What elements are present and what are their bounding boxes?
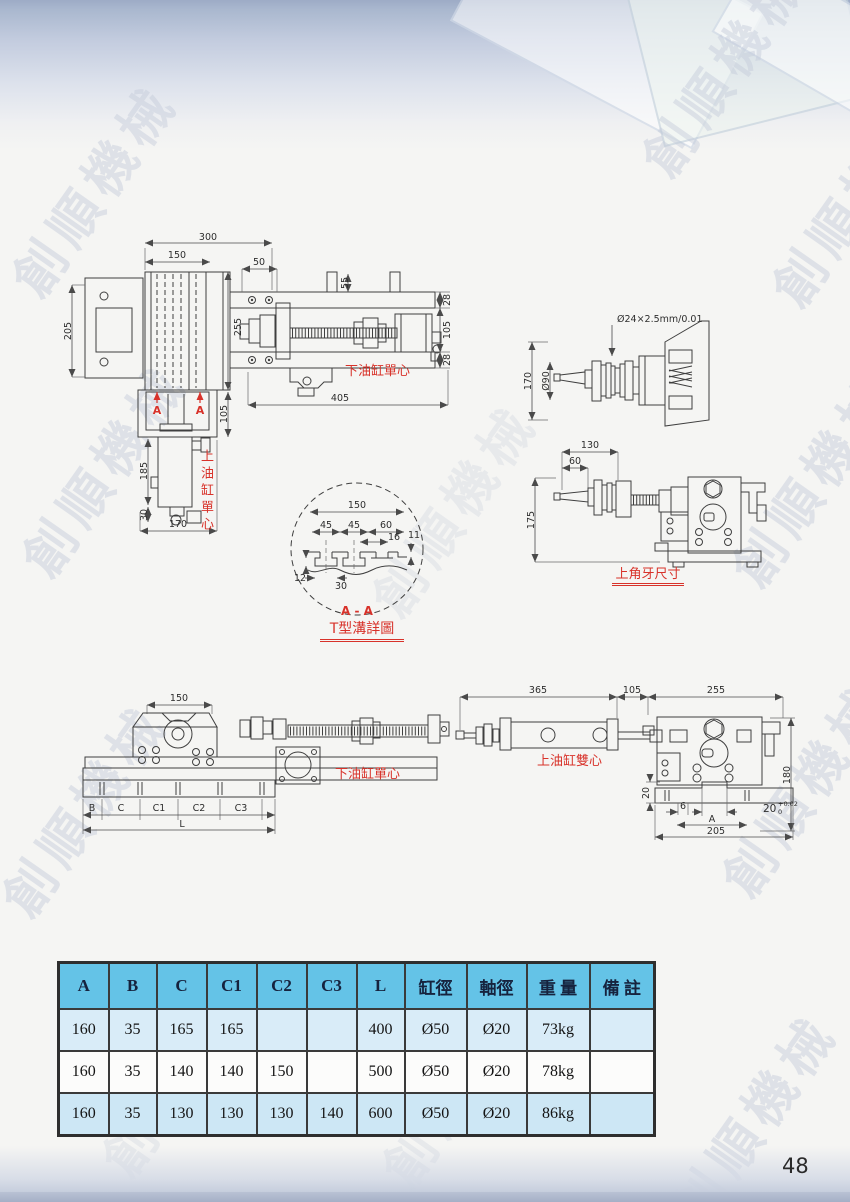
table-cell: 165: [207, 1009, 257, 1051]
table-cell: Ø50: [405, 1009, 467, 1051]
table-row: 160 35 140 140 150 500 Ø50 Ø20 78kg: [59, 1051, 655, 1093]
table-header-cell: 備 註: [590, 963, 655, 1010]
table-cell: Ø50: [405, 1051, 467, 1093]
table-cell: 160: [59, 1009, 109, 1051]
table-cell: 165: [157, 1009, 207, 1051]
dim-ls-C2: C2: [193, 803, 206, 814]
table-row: 160 35 165 165 400 Ø50 Ø20 73kg: [59, 1009, 655, 1051]
table-cell: 130: [207, 1093, 257, 1136]
dim-ut-6: 6: [680, 801, 686, 812]
catalog-page: 創順機械 創順機械 創順機械 創順機械 創順機械 創順機械 創順機械 創順機械 …: [0, 0, 850, 1202]
table-cell: [590, 1051, 655, 1093]
table-cell: [307, 1051, 357, 1093]
table-cell: [307, 1009, 357, 1051]
dim-front-50: 50: [253, 257, 265, 268]
table-header-cell: C2: [257, 963, 307, 1010]
table-cell: 160: [59, 1051, 109, 1093]
table-cell: 73kg: [527, 1009, 590, 1051]
table-cell: Ø20: [467, 1093, 527, 1136]
dim-slot-11: 11: [408, 530, 420, 541]
table-cell: 400: [357, 1009, 405, 1051]
dim-ls-150: 150: [170, 693, 188, 704]
dim-front-150: 150: [168, 250, 186, 261]
table-cell: [590, 1009, 655, 1051]
footer-gradient: [0, 1146, 850, 1192]
dim-front-185: 185: [139, 462, 150, 480]
spec-table-container: A B C C1 C2 C3 L 缸徑 軸徑 重 量 備 註 160 35 16…: [57, 961, 656, 1137]
dim-front-205: 205: [63, 322, 74, 340]
table-header-cell: A: [59, 963, 109, 1010]
dim-front-55: 55: [340, 277, 351, 289]
table-cell: 86kg: [527, 1093, 590, 1136]
table-header-cell: 軸徑: [467, 963, 527, 1010]
dim-front-105b: 105: [219, 405, 230, 423]
dim-hw-d90: Ø90: [541, 371, 552, 391]
table-header-row: A B C C1 C2 C3 L 缸徑 軸徑 重 量 備 註: [59, 963, 655, 1010]
table-cell: 140: [307, 1093, 357, 1136]
drawing-handwheel-view: Ø24×2.5mm/0.01 170 Ø90: [523, 314, 709, 426]
table-cell: 140: [207, 1051, 257, 1093]
dim-ut-tol-bottom: 0: [778, 808, 782, 816]
table-cell: Ø20: [467, 1051, 527, 1093]
dim-slot-150: 150: [348, 500, 366, 511]
table-cell: 500: [357, 1051, 405, 1093]
dim-front-28a: 28: [442, 294, 453, 306]
dim-ut-tol-top: +0.02: [778, 800, 798, 808]
technical-drawings: 300 150 50 55 205 255 28 105 28 405: [0, 0, 850, 950]
dim-ls-C: C: [118, 803, 125, 814]
label-upper-cylinder-double: 上油缸雙心: [537, 753, 602, 769]
dim-front-170: 170: [169, 519, 187, 530]
table-header-cell: 缸徑: [405, 963, 467, 1010]
table-cell: 600: [357, 1093, 405, 1136]
label-lower-cylinder: 下油缸單心: [345, 363, 410, 379]
section-marker-a: A: [196, 404, 205, 417]
dim-slot-45a: 45: [320, 520, 332, 531]
drawing-lower-unit-side: 150: [83, 693, 449, 834]
drawing-t-slot-detail: 150 45 45 60 16 11 12 30 A - A: [291, 483, 423, 618]
table-cell: 130: [157, 1093, 207, 1136]
table-row: 160 35 130 130 130 140 600 Ø50 Ø20 86kg: [59, 1093, 655, 1136]
table-cell: Ø50: [405, 1093, 467, 1136]
section-label-aa: A - A: [341, 604, 374, 618]
dim-ut-365: 365: [529, 685, 547, 696]
dim-ls-B: B: [89, 803, 96, 814]
dim-slot-60: 60: [380, 520, 392, 531]
table-header-cell: C: [157, 963, 207, 1010]
table-header-cell: B: [109, 963, 157, 1010]
dim-ls-C1: C1: [153, 803, 166, 814]
spec-table: A B C C1 C2 C3 L 缸徑 軸徑 重 量 備 註 160 35 16…: [57, 961, 656, 1137]
table-cell: 150: [257, 1051, 307, 1093]
dim-slot-30: 30: [335, 581, 347, 592]
callout-dial: Ø24×2.5mm/0.01: [617, 314, 703, 325]
dim-front-405: 405: [331, 393, 349, 404]
table-cell: 160: [59, 1093, 109, 1136]
dim-front-30: 30: [139, 509, 150, 521]
table-header-cell: L: [357, 963, 405, 1010]
dim-ut-105: 105: [623, 685, 641, 696]
dim-us-60: 60: [569, 456, 581, 467]
dim-front-300: 300: [199, 232, 217, 243]
dim-us-175: 175: [526, 511, 537, 529]
dim-ut-205: 205: [707, 826, 725, 837]
dim-ut-A: A: [709, 814, 716, 825]
table-cell: [257, 1009, 307, 1051]
drawing-upper-unit-top: 365 105 255 180: [456, 685, 798, 840]
drawing-front-view: 300 150 50 55 205 255 28 105 28 405: [63, 232, 453, 531]
dim-front-255: 255: [233, 318, 244, 336]
table-cell: 35: [109, 1051, 157, 1093]
dim-ut-tol: 20: [763, 803, 776, 815]
caption-t-slot-detail: T型溝詳圖: [320, 618, 404, 642]
dim-slot-12: 12: [294, 573, 306, 584]
table-cell: 130: [257, 1093, 307, 1136]
dim-front-28b: 28: [442, 354, 453, 366]
table-header-cell: C3: [307, 963, 357, 1010]
table-cell: 35: [109, 1009, 157, 1051]
dim-slot-45b: 45: [348, 520, 360, 531]
page-number: 48: [782, 1154, 809, 1178]
dim-ls-L: L: [179, 819, 185, 830]
dim-hw-170: 170: [523, 372, 534, 390]
table-cell: 140: [157, 1051, 207, 1093]
dim-ut-180: 180: [782, 766, 793, 784]
footer-bar: [0, 1192, 850, 1202]
drawing-upper-unit-side: 130 60 175: [526, 440, 766, 567]
section-marker-a: A: [153, 404, 162, 417]
dim-ut-20: 20: [641, 787, 652, 799]
table-cell: 78kg: [527, 1051, 590, 1093]
dim-ut-255: 255: [707, 685, 725, 696]
table-header-cell: C1: [207, 963, 257, 1010]
table-header-cell: 重 量: [527, 963, 590, 1010]
label-lower-cylinder-2: 下油缸單心: [335, 766, 400, 782]
table-cell: 35: [109, 1093, 157, 1136]
caption-upper-angle-dims: 上角牙尺寸: [612, 563, 684, 586]
dim-ls-C3: C3: [235, 803, 248, 814]
table-cell: Ø20: [467, 1009, 527, 1051]
dim-slot-16: 16: [388, 532, 400, 543]
table-cell: [590, 1093, 655, 1136]
dim-front-105r: 105: [442, 321, 453, 339]
label-upper-cylinder-vertical: 上油缸單心: [196, 449, 215, 534]
dim-us-130: 130: [581, 440, 599, 451]
